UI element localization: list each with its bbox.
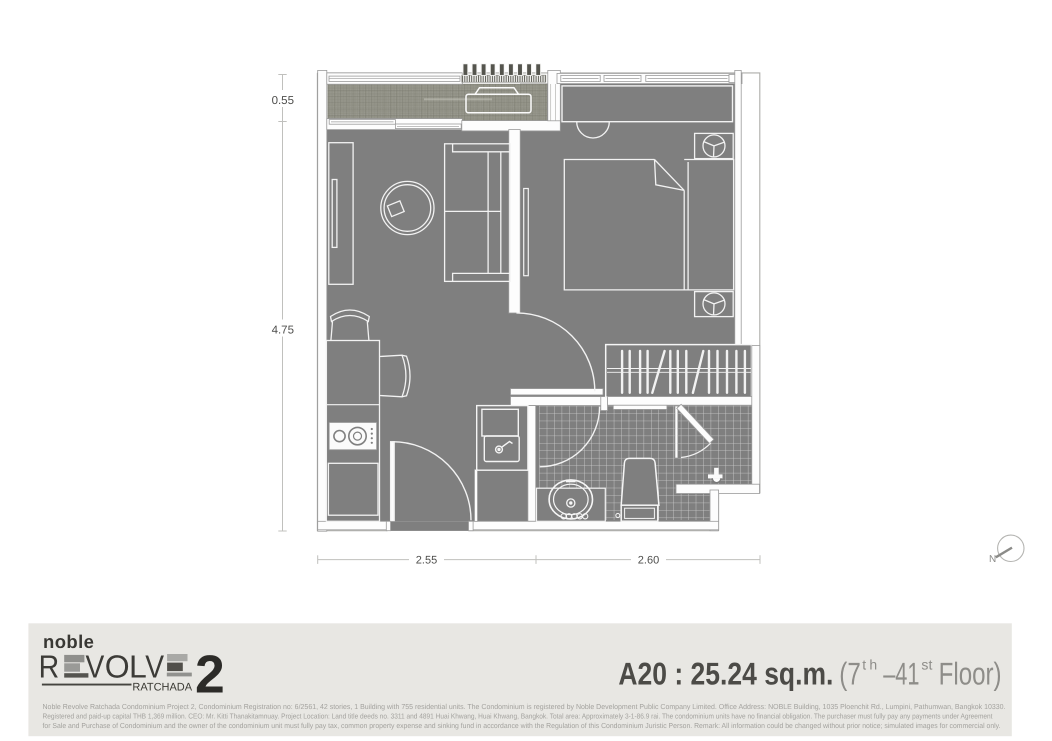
svg-text:V: V — [86, 649, 105, 685]
svg-text:0.55: 0.55 — [272, 95, 294, 107]
svg-text:4.75: 4.75 — [272, 325, 294, 337]
svg-text:2.60: 2.60 — [638, 555, 659, 567]
svg-text:O: O — [105, 649, 130, 685]
svg-text:Registered and paid-up capital: Registered and paid-up capital THB 1,369… — [43, 711, 993, 720]
svg-text:Noble Revolve Ratchada Condomi: Noble Revolve Ratchada Condominium Proje… — [43, 702, 1006, 711]
svg-text:V: V — [145, 649, 164, 685]
svg-text:for Sale and Purchase of Condo: for Sale and Purchase of Condominium and… — [43, 721, 1001, 730]
svg-text:A20 : 25.24 sq.m.: A20 : 25.24 sq.m. — [618, 655, 833, 691]
svg-text:th: th — [862, 657, 877, 673]
svg-text:2: 2 — [195, 646, 225, 705]
svg-text:2.55: 2.55 — [416, 555, 437, 567]
svg-text:R: R — [39, 649, 60, 685]
svg-text:st: st — [921, 657, 932, 673]
svg-text:RATCHADA: RATCHADA — [132, 682, 192, 694]
svg-text:L: L — [129, 649, 147, 685]
svg-text:Floor): Floor) — [939, 655, 1002, 691]
svg-text:N: N — [989, 554, 996, 565]
svg-text:(7: (7 — [839, 655, 861, 691]
svg-text:–41: –41 — [883, 655, 919, 691]
